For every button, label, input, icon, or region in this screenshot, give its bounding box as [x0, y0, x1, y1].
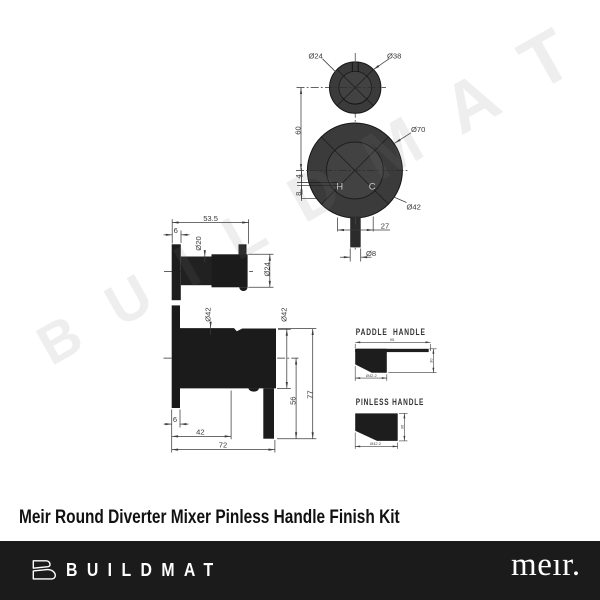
svg-text:Ø8: Ø8	[366, 249, 376, 258]
svg-text:Ø70: Ø70	[411, 125, 425, 134]
svg-text:Ø20: Ø20	[194, 236, 203, 250]
svg-text:95: 95	[390, 337, 395, 342]
svg-text:56: 56	[289, 396, 298, 404]
svg-text:PINLESS HANDLE: PINLESS HANDLE	[356, 397, 424, 407]
svg-text:PADDLE HANDLE: PADDLE HANDLE	[356, 327, 426, 337]
svg-text:42: 42	[196, 427, 204, 436]
svg-text:6: 6	[173, 415, 177, 424]
svg-text:36: 36	[400, 424, 405, 429]
svg-text:53.5: 53.5	[203, 214, 218, 223]
svg-text:72: 72	[219, 441, 227, 450]
svg-text:Ø24: Ø24	[262, 262, 271, 276]
svg-text:Ø38: Ø38	[387, 51, 401, 60]
svg-text:60: 60	[293, 126, 302, 134]
svg-text:4: 4	[294, 174, 303, 178]
svg-text:27: 27	[381, 222, 389, 231]
svg-text:C: C	[369, 181, 376, 192]
svg-text:Ø42: Ø42	[280, 308, 289, 322]
svg-text:Ø42.2: Ø42.2	[366, 373, 378, 378]
svg-text:Ø24: Ø24	[309, 51, 323, 60]
svg-text:H: H	[336, 181, 343, 192]
svg-text:8: 8	[294, 192, 303, 196]
svg-text:Ø42.2: Ø42.2	[370, 441, 382, 446]
svg-text:77: 77	[305, 390, 314, 398]
svg-text:Ø42: Ø42	[407, 202, 421, 211]
svg-text:Ø42: Ø42	[203, 307, 212, 321]
svg-text:30: 30	[429, 358, 434, 363]
svg-text:6: 6	[174, 226, 178, 235]
